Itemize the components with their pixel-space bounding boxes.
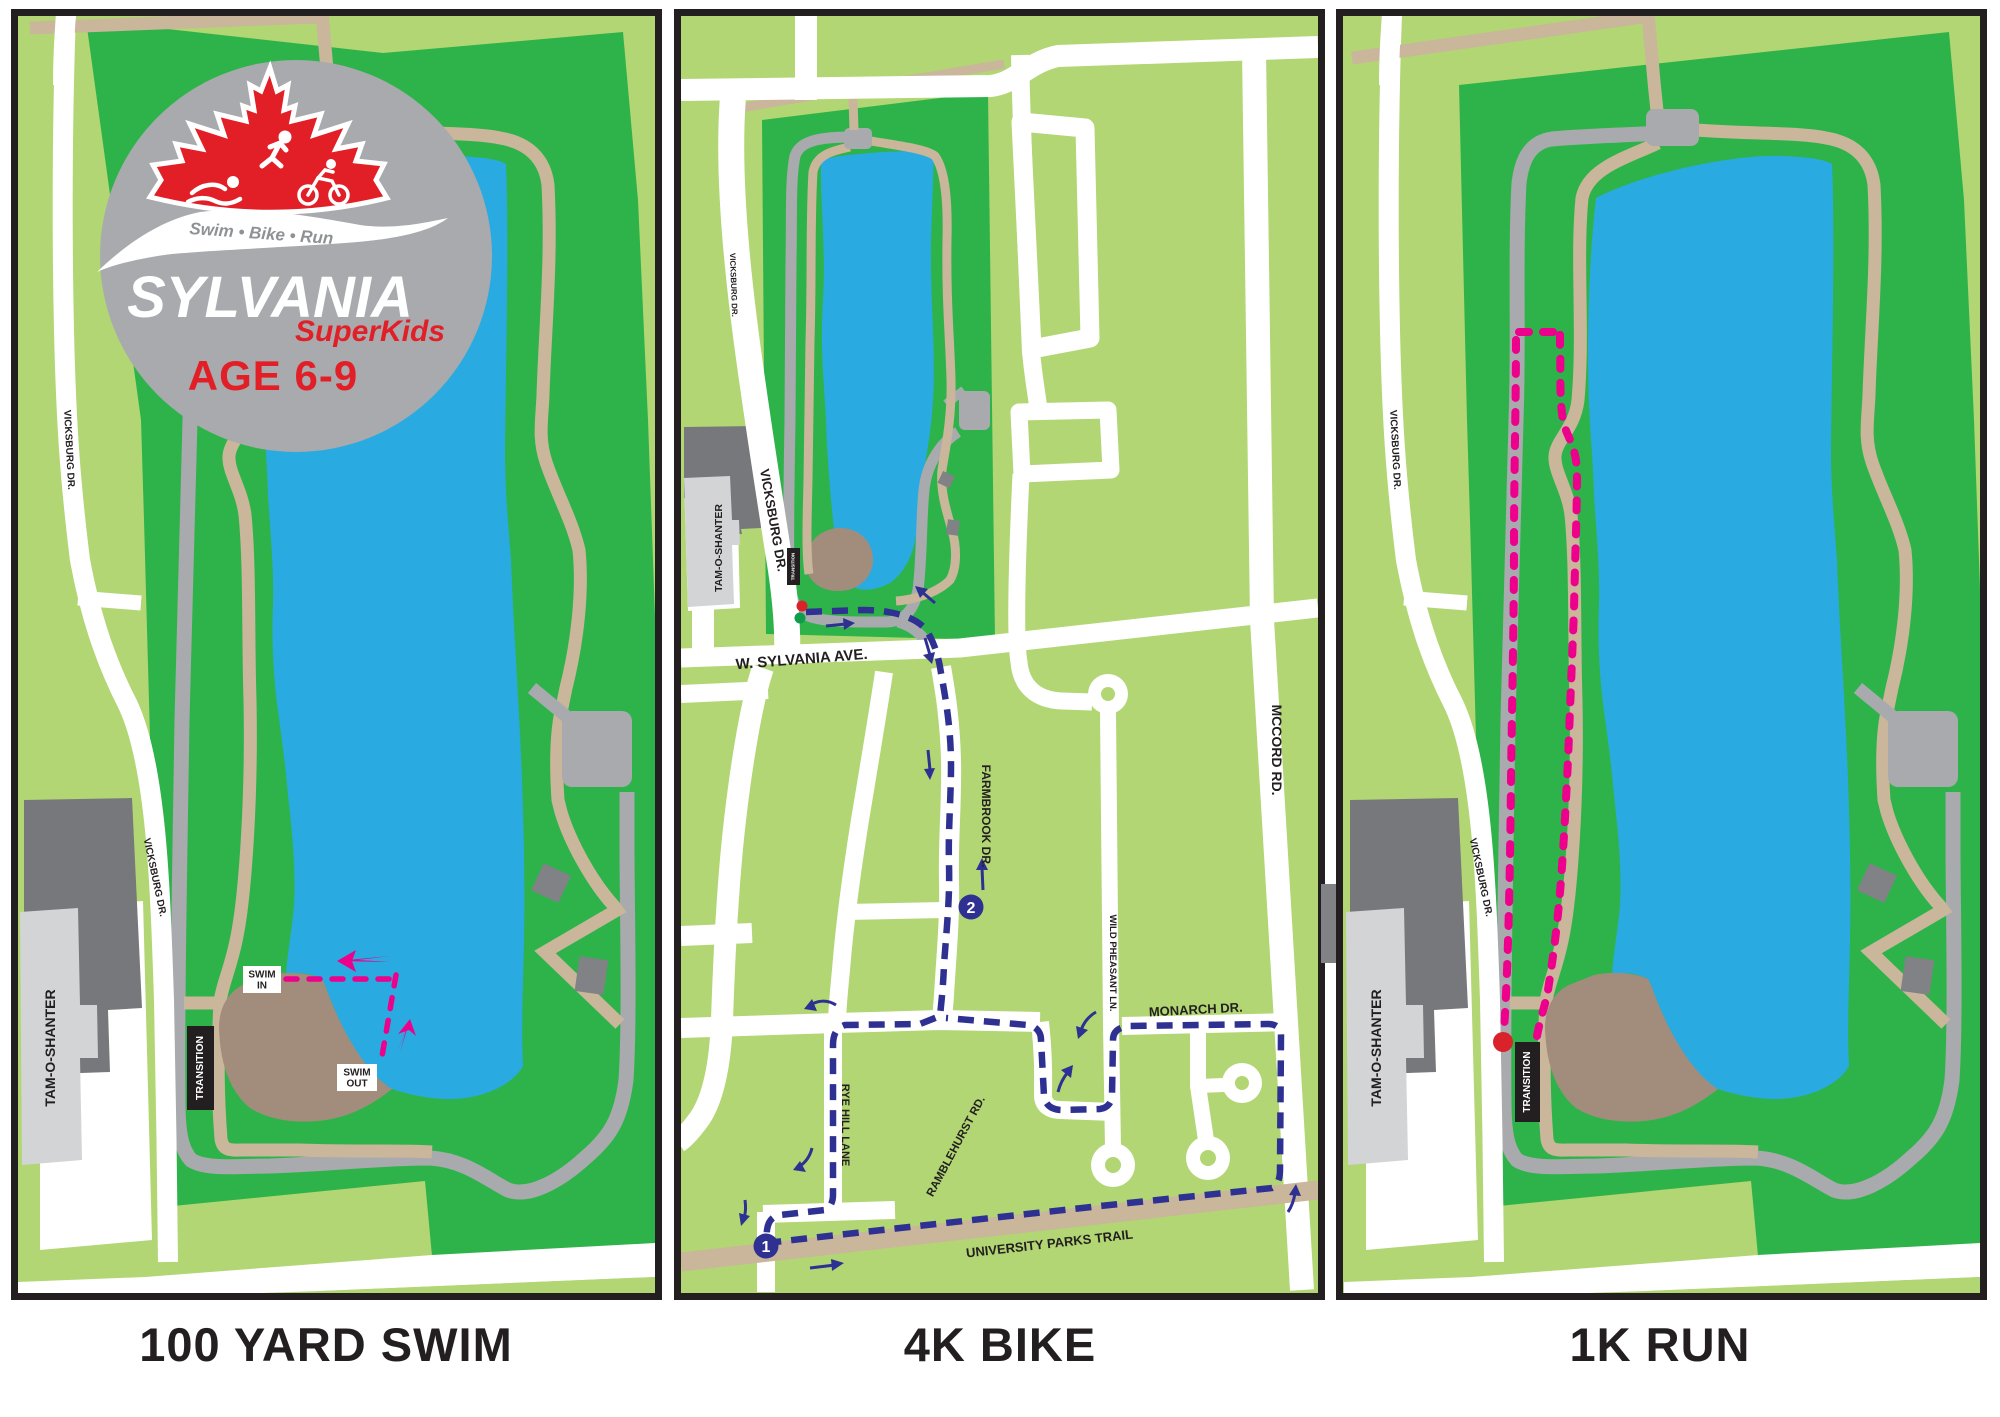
svg-text:WILD PHEASANT LN.: WILD PHEASANT LN. [1107,914,1118,1011]
svg-text:SuperKids: SuperKids [295,315,445,348]
svg-text:4K BIKE: 4K BIKE [904,1318,1096,1371]
svg-text:MCCORD RD.: MCCORD RD. [1269,705,1285,796]
svg-text:1: 1 [762,1239,771,1256]
svg-text:FARMBROOK DR.: FARMBROOK DR. [979,765,993,868]
svg-text:SWIM: SWIM [248,970,275,981]
svg-text:AGE 6-9: AGE 6-9 [188,352,358,399]
svg-text:TRANSITION: TRANSITION [791,553,796,581]
svg-text:RYE HILL LANE: RYE HILL LANE [839,1084,851,1167]
svg-text:TAM-O-SHANTER: TAM-O-SHANTER [713,504,725,592]
svg-text:100 YARD SWIM: 100 YARD SWIM [139,1318,512,1371]
svg-text:OUT: OUT [346,1079,367,1090]
svg-text:TRANSITION: TRANSITION [1522,1051,1533,1112]
svg-text:TRANSITION: TRANSITION [194,1036,206,1100]
svg-text:2: 2 [967,900,976,917]
svg-text:IN: IN [257,981,267,992]
svg-text:1K RUN: 1K RUN [1570,1318,1751,1371]
svg-text:SWIM: SWIM [343,1068,370,1079]
